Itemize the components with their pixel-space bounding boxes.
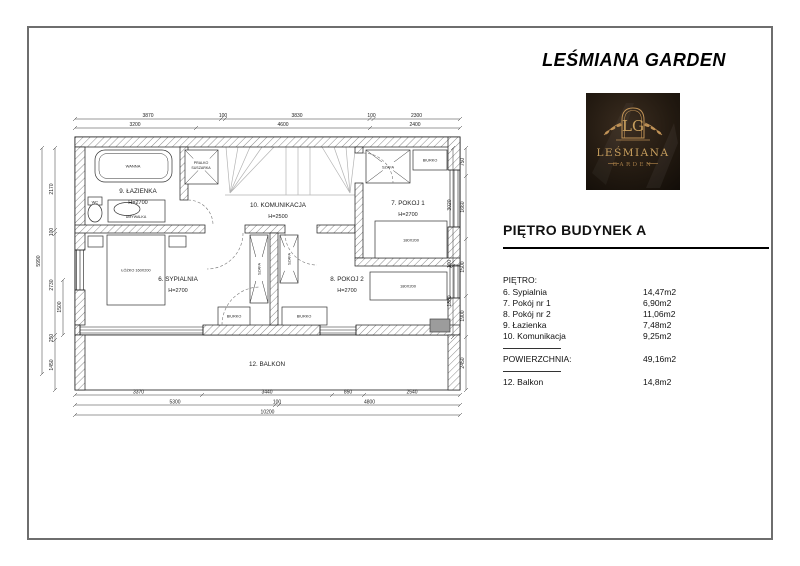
dim-label: 2400 [409,122,420,128]
legend-row: 8. Pokój nr 2 11,06m2 [503,309,769,320]
dim-label: 3020 [447,199,453,210]
sheet-heading: PIĘTRO BUDYNEK A [503,222,769,249]
dim-label: 1500 [460,261,466,272]
window [448,170,460,227]
dim-label: 10200 [261,409,275,415]
label-wardrobe-sypialnia: SZAFA [258,263,262,275]
dim-label: 1500 [57,301,63,312]
legend-row: 6. Sypialnia 14,47m2 [503,287,769,298]
room-label-lazienka: 9. ŁAZIENKA [119,188,157,195]
wall-segment [270,233,278,325]
legend-section-label: PIĘTRO: [503,275,769,286]
room-height-sypialnia: H=2700 [168,288,187,294]
room-label-sypialnia: 6. SYPIALNIA [158,276,198,283]
legend-divider [503,348,561,349]
room-height-pokoj2: H=2700 [337,288,356,294]
wall-segment [245,225,285,233]
label-desk-pokoj2: BIURKO [297,315,312,319]
label-bed-pokoj2: 180X200 [400,284,417,289]
label-wc: WC [92,200,99,205]
wall-segment [75,335,85,390]
room-label-pokoj2: 8. POKOJ 2 [330,276,364,283]
dim-label: 3200 [129,122,140,128]
room-area: 9,25m2 [643,331,769,342]
dim-label: 100 [273,399,282,405]
window [448,265,460,298]
room-area: 7,48m2 [643,320,769,331]
label-bed-pokoj1: 180X200 [403,238,420,243]
legend-total-row: POWIERZCHNIA: 49,16m2 [503,354,769,365]
nightstand [88,236,103,247]
dim-label: 5990 [36,255,42,266]
label-desk-pokoj1: BIURKO [423,159,438,163]
dim-label: 3870 [142,113,153,119]
wall-segment [75,147,85,250]
label-washer-line2: SUSZARKA [191,166,211,170]
window [75,250,85,290]
dim-label: 2540 [406,389,417,395]
dim-label: 5300 [169,399,180,405]
dim-label: 3440 [261,389,272,395]
legend-row: 10. Komunikacja 9,25m2 [503,331,769,342]
plan-sheet-page: LEŚMIANA GARDEN [0,0,800,566]
project-title: LEŚMIANA GARDEN [498,50,770,71]
label-wardrobe-pokoj2: SZAFA [288,253,292,265]
dim-label: 1450 [49,359,55,370]
label-bed-sypialnia: ŁÓŻKO 160X200 [121,268,150,273]
room-label: 7. Pokój nr 1 [503,298,643,309]
total-area: 49,16m2 [643,354,769,365]
room-label: 8. Pokój nr 2 [503,309,643,320]
wall-segment [75,290,85,325]
wall-segment [355,258,460,266]
wall-segment [75,325,80,335]
room-label-komunikacja: 10. KOMUNIKACJA [250,202,307,209]
total-label: POWIERZCHNIA: [503,354,643,365]
dim-label: 1880 [447,295,453,306]
legend-row: 7. Pokój nr 1 6,90m2 [503,298,769,309]
brand-logo-art: LG LEŚMIANA GARDEN [586,93,680,190]
wall-segment [75,137,460,147]
label-sink: UMYWALKA [126,215,147,219]
dim-label: 100 [49,228,55,237]
dim-label: 3830 [291,113,302,119]
room-label-pokoj1: 7. POKOJ 1 [391,200,425,207]
wall-segment [448,137,460,170]
brand-logo: LG LEŚMIANA GARDEN [586,93,680,190]
wall-segment [203,325,320,335]
dim-label: 2300 [411,113,422,119]
dim-label: 2450 [460,357,466,368]
dim-label: 2730 [49,279,55,290]
balcony-label: 12. Balkon [503,377,643,388]
room-area: 6,90m2 [643,298,769,309]
wall-segment [317,225,355,233]
wall-segment [75,225,205,233]
dim-label: 2170 [49,183,55,194]
dim-label: 1900 [460,310,466,321]
floor-plan-drawing: 9. ŁAZIENKA H=2700 10. KOMUNIKACJA H=250… [30,105,480,430]
dim-label: 4800 [364,399,375,405]
label-washer-line1: PRALKO [194,161,209,165]
dim-label: 1660 [460,201,466,212]
room-height-pokoj1: H=2700 [398,212,417,218]
label-bathtub: WANNA [126,164,141,169]
wall-segment [355,183,363,258]
logo-brand-text: LEŚMIANA [596,145,669,159]
room-height-komunikacja: H=2500 [268,214,287,220]
room-area: 11,06m2 [643,309,769,320]
room-label: 10. Komunikacja [503,331,643,342]
nightstand [169,236,186,247]
wall-segment [448,335,460,390]
balcony-area: 14,8m2 [643,377,769,388]
room-label-balkon: 12. BALKON [249,361,286,368]
dim-label: 850 [344,389,353,395]
logo-sub-text: GARDEN [613,162,654,168]
room-label: 6. Sypialnia [503,287,643,298]
wall-segment [355,147,363,153]
dim-label: 100 [367,113,376,119]
logo-monogram: LG [622,117,644,135]
room-area: 14,47m2 [643,287,769,298]
label-desk-sypialnia: BIURKO [227,315,242,319]
dim-label: 100 [447,260,453,269]
area-legend: PIĘTRO: 6. Sypialnia 14,47m2 7. Pokój nr… [503,275,769,388]
room-height-lazienka: H=2700 [128,200,147,206]
legend-divider [503,371,561,372]
label-wardrobe-pokoj1: SZAFA [382,166,394,170]
dim-label: 3370 [133,389,144,395]
room-label: 9. Łazienka [503,320,643,331]
dim-label: 4600 [277,122,288,128]
dim-label: 100 [219,113,228,119]
legend-row: 9. Łazienka 7,48m2 [503,320,769,331]
dim-label: 750 [460,158,466,167]
legend-balcony-row: 12. Balkon 14,8m2 [503,377,769,388]
ac-unit [430,319,450,332]
dim-label: 250 [49,334,55,343]
